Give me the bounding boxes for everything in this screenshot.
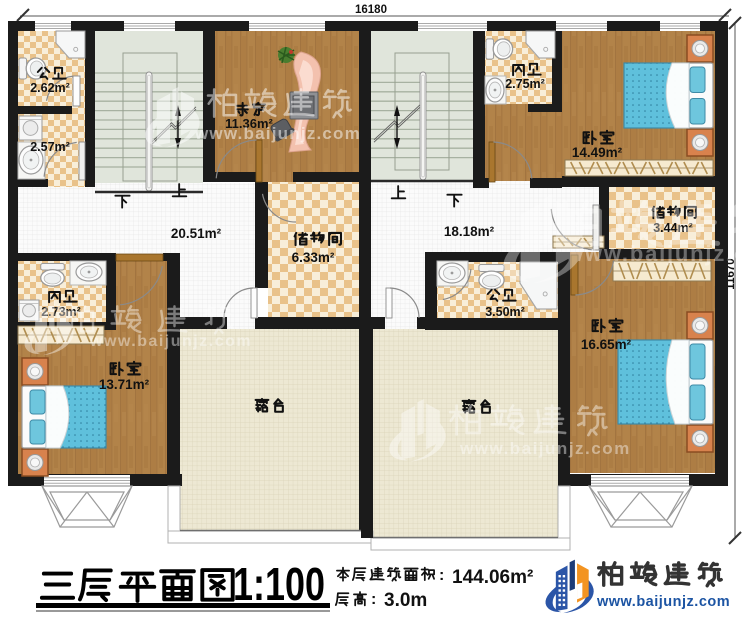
- svg-text:www.baijunjz.com: www.baijunjz.com: [194, 124, 361, 143]
- svg-text:14.49m²: 14.49m²: [572, 145, 623, 160]
- svg-text:144.06m²: 144.06m²: [452, 567, 533, 588]
- svg-text:13.71m²: 13.71m²: [99, 377, 150, 392]
- svg-text:www.baijunjz.com: www.baijunjz.com: [459, 439, 631, 458]
- svg-text:20.51m²: 20.51m²: [171, 226, 222, 241]
- svg-text:1:100: 1:100: [233, 558, 325, 610]
- svg-text:16180: 16180: [355, 4, 387, 16]
- svg-text:3.50m²: 3.50m²: [485, 305, 525, 319]
- svg-text::: :: [371, 591, 376, 608]
- svg-text:2.62m²: 2.62m²: [30, 81, 70, 95]
- svg-text:6.33m²: 6.33m²: [292, 250, 335, 265]
- svg-text:www.baijunjz.com: www.baijunjz.com: [89, 333, 252, 350]
- svg-text:www.baijunjz.com: www.baijunjz.com: [565, 241, 750, 266]
- svg-text:www.baijunjz.com: www.baijunjz.com: [596, 594, 730, 610]
- svg-text:2.57m²: 2.57m²: [30, 140, 70, 154]
- svg-text:16.65m²: 16.65m²: [581, 337, 632, 352]
- svg-text::: :: [439, 567, 444, 584]
- svg-text:3.0m: 3.0m: [384, 590, 427, 611]
- svg-text:2.75m²: 2.75m²: [505, 77, 545, 91]
- svg-text:18.18m²: 18.18m²: [444, 224, 495, 239]
